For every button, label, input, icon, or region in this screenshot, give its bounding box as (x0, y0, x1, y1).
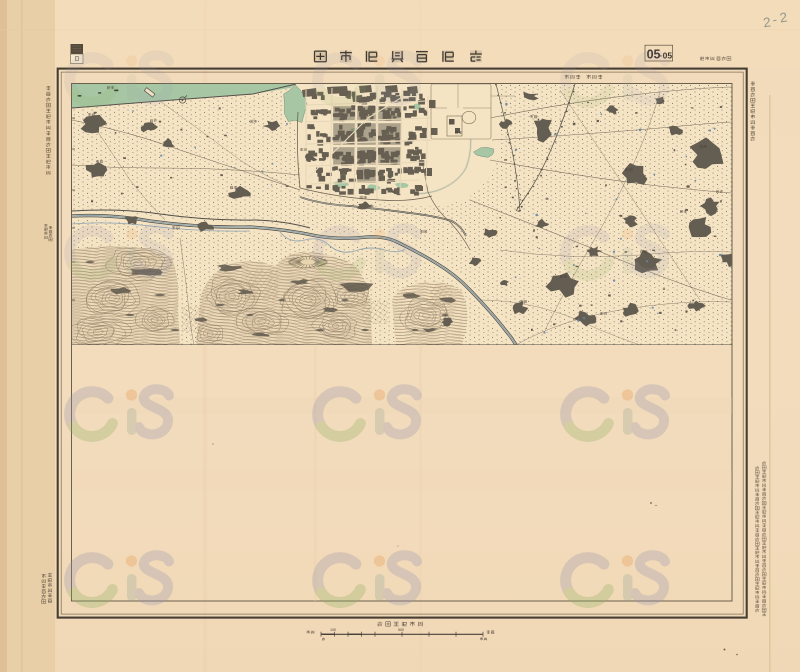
svg-text:500: 500 (398, 628, 404, 632)
svg-text:100: 100 (330, 628, 336, 632)
